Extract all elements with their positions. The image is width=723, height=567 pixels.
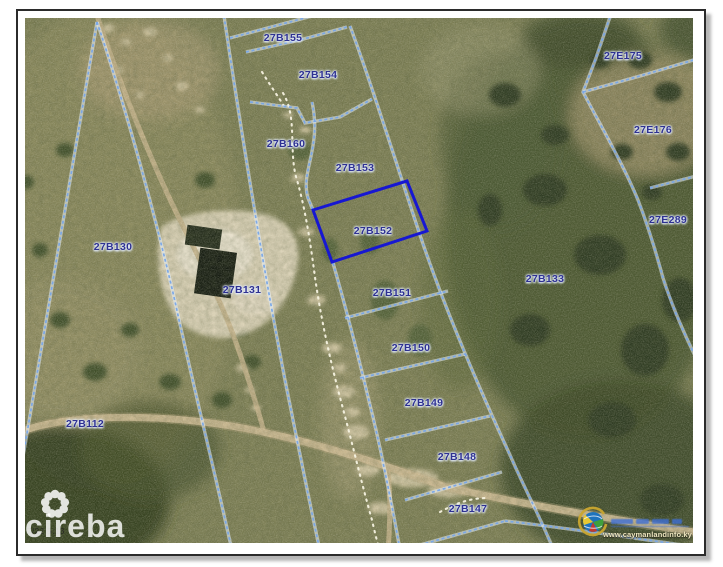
parcel-label-27B150: 27B150 bbox=[392, 342, 431, 354]
parcel-label-27B152: 27B152 bbox=[354, 225, 393, 237]
parcel-labels-layer: 27B15527B15427B16027B15327B15227B15127B1… bbox=[25, 18, 693, 543]
parcel-label-27B133: 27B133 bbox=[526, 273, 565, 285]
parcel-label-27E175: 27E175 bbox=[604, 50, 642, 62]
parcel-label-27E176: 27E176 bbox=[634, 124, 672, 136]
parcel-label-27B131: 27B131 bbox=[223, 284, 262, 296]
parcel-label-27B155: 27B155 bbox=[264, 32, 303, 44]
parcel-label-27B153: 27B153 bbox=[336, 162, 375, 174]
parcel-label-27B148: 27B148 bbox=[438, 451, 477, 463]
landinfo-url: www.caymanlandinfo.ky bbox=[603, 530, 692, 539]
aerial-photo: 27B15527B15427B16027B15327B15227B15127B1… bbox=[25, 18, 693, 543]
landinfo-watermark: www.caymanlandinfo.ky bbox=[577, 506, 693, 543]
map-frame: 27B15527B15427B16027B15327B15227B15127B1… bbox=[16, 9, 706, 556]
cireba-watermark: 7/22 5:13 cireba bbox=[31, 488, 181, 543]
parcel-label-27B151: 27B151 bbox=[373, 287, 412, 299]
parcel-label-27E289: 27E289 bbox=[649, 214, 687, 226]
parcel-label-27B112: 27B112 bbox=[66, 418, 104, 430]
cireba-logo-text: cireba bbox=[25, 510, 125, 542]
parcel-label-27B147: 27B147 bbox=[449, 503, 488, 515]
parcel-label-27B154: 27B154 bbox=[299, 69, 338, 81]
parcel-label-27B160: 27B160 bbox=[267, 138, 306, 150]
landinfo-blurred-text bbox=[611, 519, 689, 526]
parcel-label-27B130: 27B130 bbox=[94, 241, 133, 253]
parcel-label-27B149: 27B149 bbox=[405, 397, 444, 409]
